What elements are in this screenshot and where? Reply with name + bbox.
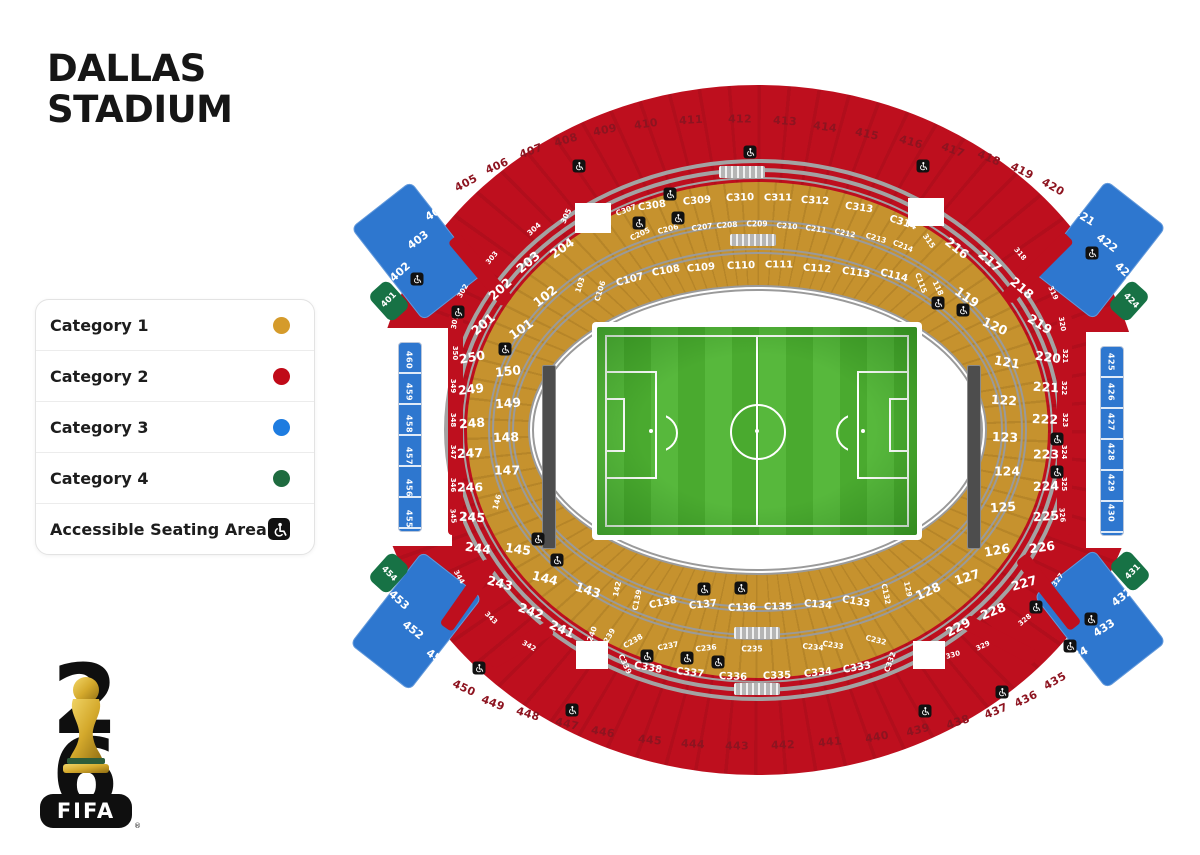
section-447[interactable]: 447 [554,715,580,733]
accessible-icon [633,217,646,230]
section-324[interactable]: 324 [1060,445,1068,460]
section-345[interactable]: 345 [448,508,457,523]
section-250[interactable]: 250 [458,347,486,366]
section-C332[interactable]: C332 [882,651,898,674]
section-407[interactable]: 407 [518,141,545,161]
section-442[interactable]: 442 [771,738,795,752]
section-C310[interactable]: C310 [726,192,755,204]
section-C233[interactable]: C233 [822,639,844,652]
section-426[interactable]: 426 [1107,383,1116,401]
section-326[interactable]: 326 [1057,507,1066,522]
section-C111[interactable]: C111 [765,260,793,271]
section-428[interactable]: 428 [1107,443,1116,461]
section-418[interactable]: 418 [975,147,1002,168]
section-148[interactable]: 148 [493,429,520,445]
section-439[interactable]: 439 [905,721,931,739]
accessible-icon [681,652,694,665]
accessible-icon [712,656,725,669]
section-441[interactable]: 441 [817,734,842,749]
section-221[interactable]: 221 [1032,379,1059,396]
section-249[interactable]: 249 [457,380,485,398]
section-125[interactable]: 125 [989,499,1016,516]
section-C239[interactable]: C239 [599,627,617,650]
section-420[interactable]: 420 [1039,175,1066,198]
section-144[interactable]: 144 [531,568,560,589]
section-245[interactable]: 245 [459,509,486,525]
section-427[interactable]: 427 [1107,413,1116,431]
section-416[interactable]: 416 [898,132,925,151]
section-C109[interactable]: C109 [686,261,715,274]
section-322[interactable]: 322 [1060,381,1068,396]
section-C335[interactable]: C335 [763,670,792,682]
accessible-icon [1051,466,1064,479]
section-204[interactable]: 204 [547,234,577,261]
accessible-icon [452,306,465,319]
section-142[interactable]: 142 [611,580,623,597]
section-241[interactable]: 241 [547,617,577,641]
section-C115[interactable]: C115 [913,272,929,295]
section-436[interactable]: 436 [1012,688,1039,710]
section-430[interactable]: 430 [1107,504,1116,522]
section-247[interactable]: 247 [457,445,484,461]
section-145[interactable]: 145 [504,540,532,558]
section-445[interactable]: 445 [637,732,662,747]
section-348[interactable]: 348 [449,413,457,428]
section-455[interactable]: 455 [405,510,414,528]
section-143[interactable]: 143 [573,579,602,601]
section-227[interactable]: 227 [1009,572,1038,594]
section-224[interactable]: 224 [1033,478,1060,494]
section-C139[interactable]: C139 [630,589,643,612]
section-413[interactable]: 413 [773,114,798,129]
section-118[interactable]: 118 [931,279,946,297]
section-225[interactable]: 225 [1032,508,1059,525]
section-C138[interactable]: C138 [648,595,678,612]
section-C134[interactable]: C134 [803,598,832,611]
accessible-icon [411,273,424,286]
section-C110[interactable]: C110 [727,260,756,272]
section-435[interactable]: 435 [1041,669,1068,692]
section-417[interactable]: 417 [940,140,967,160]
section-446[interactable]: 446 [590,724,616,741]
section-C213[interactable]: C213 [865,231,888,245]
section-C336[interactable]: C336 [719,671,748,683]
section-103[interactable]: 103 [573,276,586,294]
section-440[interactable]: 440 [864,729,890,746]
section-C234[interactable]: C234 [802,641,824,652]
accessible-icon [1064,640,1077,653]
section-150[interactable]: 150 [494,362,522,380]
section-217[interactable]: 217 [975,247,1004,276]
section-448[interactable]: 448 [515,704,542,723]
walkway-label-0 [719,166,765,178]
accessible-icon [698,583,711,596]
section-C334[interactable]: C334 [803,666,832,680]
section-330[interactable]: 330 [945,649,961,661]
section-C309[interactable]: C309 [682,194,711,207]
section-405[interactable]: 405 [452,172,479,195]
section-222[interactable]: 222 [1032,411,1059,427]
section-C108[interactable]: C108 [651,263,681,279]
accessible-icon [532,533,545,546]
section-408[interactable]: 408 [553,130,580,149]
section-146[interactable]: 146 [491,493,504,510]
section-128[interactable]: 128 [913,579,943,603]
section-121[interactable]: 121 [993,352,1021,371]
walkway-label-3 [734,683,780,695]
section-229[interactable]: 229 [943,614,973,639]
section-C133[interactable]: C133 [841,594,871,610]
section-101[interactable]: 101 [506,315,536,342]
section-C212[interactable]: C212 [834,226,857,239]
section-201[interactable]: 201 [468,310,498,338]
accessible-icon [641,650,654,663]
section-329[interactable]: 329 [975,639,992,652]
section-444[interactable]: 444 [681,737,706,751]
section-C210[interactable]: C210 [776,221,798,231]
section-456[interactable]: 456 [405,479,414,497]
section-C132[interactable]: C132 [879,583,892,606]
section-C312[interactable]: C312 [801,195,830,207]
section-459[interactable]: 459 [405,383,414,401]
section-C137[interactable]: C137 [688,598,717,612]
section-242[interactable]: 242 [516,599,546,622]
section-323[interactable]: 323 [1061,413,1069,428]
section-443[interactable]: 443 [725,740,749,753]
section-460[interactable]: 460 [405,351,414,369]
section-C214[interactable]: C214 [891,238,914,254]
section-246[interactable]: 246 [457,480,483,495]
section-129[interactable]: 129 [902,580,914,597]
section-120[interactable]: 120 [980,314,1010,339]
section-C308[interactable]: C308 [637,199,666,214]
section-412[interactable]: 412 [728,113,752,126]
accessible-icon [735,582,748,595]
accessible-icon [573,160,586,173]
section-244[interactable]: 244 [464,539,492,557]
section-C106[interactable]: C106 [592,280,607,303]
section-411[interactable]: 411 [679,113,704,128]
section-243[interactable]: 243 [485,572,514,593]
section-321[interactable]: 321 [1061,349,1069,364]
section-C113[interactable]: C113 [841,266,870,281]
section-419[interactable]: 419 [1008,160,1035,182]
section-C136[interactable]: C136 [728,602,757,614]
world-cup-trophy-icon [54,666,118,784]
section-228[interactable]: 228 [978,599,1008,623]
section-437[interactable]: 437 [982,701,1009,722]
section-450[interactable]: 450 [450,677,477,699]
west-side-bar [398,342,422,532]
section-449[interactable]: 449 [480,693,507,714]
section-325[interactable]: 325 [1060,477,1068,492]
section-C235[interactable]: C235 [741,645,762,654]
accessible-icon [917,160,930,173]
accessible-icon [1030,601,1043,614]
accessible-icon [996,686,1009,699]
section-C307[interactable]: C307 [615,202,638,218]
section-C107[interactable]: C107 [615,271,645,289]
section-C314[interactable]: C314 [888,213,918,232]
section-203[interactable]: 203 [513,248,543,276]
section-C211[interactable]: C211 [805,223,827,235]
section-C114[interactable]: C114 [879,267,909,285]
section-438[interactable]: 438 [945,712,972,732]
section-328[interactable]: 328 [1017,612,1033,628]
section-C333[interactable]: C333 [842,660,872,676]
accessible-icon [932,297,945,310]
section-406[interactable]: 406 [483,155,510,177]
section-C208[interactable]: C208 [716,220,738,230]
section-457[interactable]: 457 [405,447,414,465]
section-126[interactable]: 126 [983,540,1011,559]
section-350[interactable]: 350 [451,346,459,361]
section-410[interactable]: 410 [633,116,658,132]
section-226[interactable]: 226 [1028,538,1056,556]
section-305[interactable]: 305 [559,207,574,225]
logo-brand-text: FIFA [57,799,115,823]
section-149[interactable]: 149 [494,395,521,412]
walkway-label-1 [730,234,776,246]
section-C339[interactable]: C339 [616,653,633,676]
accessible-icon [672,212,685,225]
accessible-icon [1085,613,1098,626]
section-C236[interactable]: C236 [695,642,717,653]
section-240[interactable]: 240 [585,625,599,643]
section-C135[interactable]: C135 [764,602,792,613]
accessible-icon [473,662,486,675]
section-C237[interactable]: C237 [657,639,680,652]
section-C337[interactable]: C337 [675,666,704,680]
section-304[interactable]: 304 [525,220,543,237]
section-C207[interactable]: C207 [691,221,713,233]
section-219[interactable]: 219 [1025,311,1055,338]
section-C238[interactable]: C238 [622,632,645,650]
accessible-icon [499,343,512,356]
logo-fifa-band: FIFA [40,794,132,828]
section-458[interactable]: 458 [405,415,414,433]
section-349[interactable]: 349 [449,379,457,394]
section-C232[interactable]: C232 [865,633,888,647]
section-124[interactable]: 124 [994,464,1020,479]
accessible-icon [1086,247,1099,260]
accessible-icon [566,704,579,717]
section-127[interactable]: 127 [952,566,981,588]
section-123[interactable]: 123 [992,429,1019,445]
accessible-icon [957,304,970,317]
section-303[interactable]: 303 [484,250,500,266]
section-122[interactable]: 122 [990,392,1017,409]
section-C311[interactable]: C311 [764,193,792,204]
section-C313[interactable]: C313 [844,201,873,216]
section-223[interactable]: 223 [1033,447,1059,462]
section-220[interactable]: 220 [1034,348,1062,366]
accessible-icon [551,554,564,567]
section-346[interactable]: 346 [449,478,457,493]
section-216[interactable]: 216 [942,234,972,262]
section-315[interactable]: 315 [921,232,937,250]
section-347[interactable]: 347 [449,445,457,460]
section-409[interactable]: 409 [592,121,618,139]
walkway-label-2 [734,627,780,639]
section-248[interactable]: 248 [458,415,485,432]
section-343[interactable]: 343 [483,610,499,626]
accessible-icon [664,188,677,201]
accessible-icon [744,146,757,159]
section-C209[interactable]: C209 [746,220,767,229]
stadium-overlay: 4054064074084094104114124134144154164174… [0,0,1200,855]
logo-trademark: ® [134,822,141,830]
corner-section-block-blue-2 [350,551,483,691]
section-425[interactable]: 425 [1107,353,1116,371]
section-147[interactable]: 147 [494,463,520,478]
accessible-icon [919,705,932,718]
section-415[interactable]: 415 [854,125,880,143]
section-429[interactable]: 429 [1107,474,1116,492]
section-414[interactable]: 414 [812,119,837,135]
accessible-icon [1051,433,1064,446]
section-102[interactable]: 102 [530,282,560,310]
section-C112[interactable]: C112 [803,263,832,276]
section-318[interactable]: 318 [1012,246,1028,262]
